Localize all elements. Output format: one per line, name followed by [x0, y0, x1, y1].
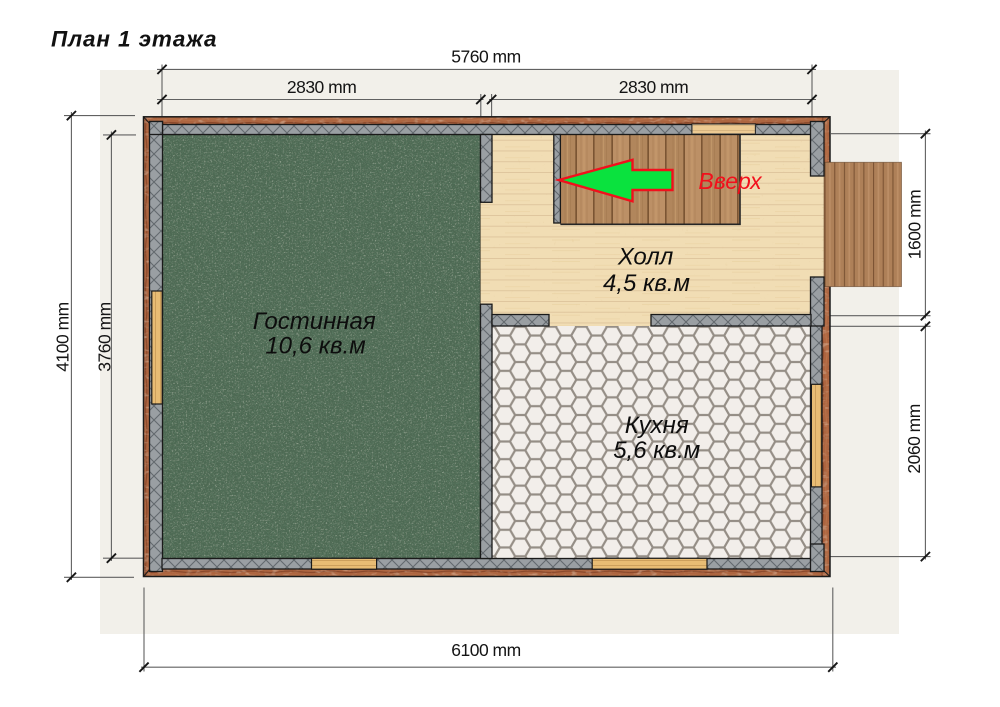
svg-text:3760 mm: 3760 mm: [95, 302, 115, 371]
svg-text:5760 mm: 5760 mm: [451, 47, 520, 67]
svg-text:1600 mm: 1600 mm: [904, 190, 924, 259]
svg-text:4,5 кв.м: 4,5 кв.м: [603, 270, 690, 297]
svg-text:Гостинная: Гостинная: [253, 308, 376, 335]
svg-text:4100 mm: 4100 mm: [53, 302, 73, 371]
svg-text:Вверх: Вверх: [698, 168, 763, 194]
svg-text:2830 mm: 2830 mm: [287, 77, 356, 97]
svg-text:6100 mm: 6100 mm: [451, 640, 520, 660]
svg-text:Холл: Холл: [617, 243, 674, 270]
svg-text:5,6 кв.м: 5,6 кв.м: [613, 437, 700, 464]
svg-text:Кухня: Кухня: [625, 412, 689, 439]
svg-text:2060 mm: 2060 mm: [904, 404, 924, 473]
svg-text:План 1 этажа: План 1 этажа: [51, 26, 217, 51]
svg-text:2830 mm: 2830 mm: [619, 77, 688, 97]
svg-text:10,6 кв.м: 10,6 кв.м: [265, 333, 365, 360]
